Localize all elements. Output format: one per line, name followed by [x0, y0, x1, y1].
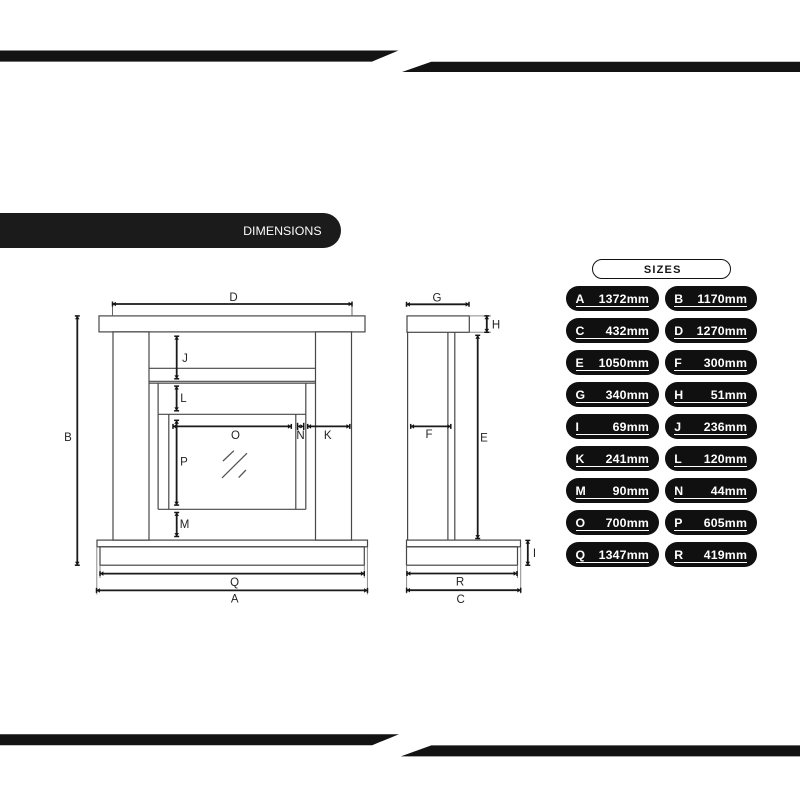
svg-text:J: J: [182, 353, 188, 365]
svg-text:C: C: [456, 594, 464, 606]
svg-text:D: D: [229, 292, 237, 304]
svg-text:G: G: [433, 293, 442, 305]
svg-text:O: O: [231, 430, 240, 442]
svg-text:M: M: [180, 519, 190, 531]
svg-text:I: I: [533, 548, 536, 560]
svg-text:N: N: [296, 430, 304, 442]
svg-text:R: R: [456, 577, 464, 589]
svg-text:E: E: [480, 433, 488, 445]
svg-text:B: B: [64, 432, 72, 444]
svg-text:L: L: [180, 393, 187, 405]
svg-text:K: K: [324, 430, 332, 442]
svg-text:A: A: [231, 594, 239, 606]
svg-text:P: P: [180, 457, 188, 469]
svg-text:F: F: [425, 429, 432, 441]
svg-text:Q: Q: [230, 577, 239, 589]
svg-text:H: H: [492, 320, 500, 332]
